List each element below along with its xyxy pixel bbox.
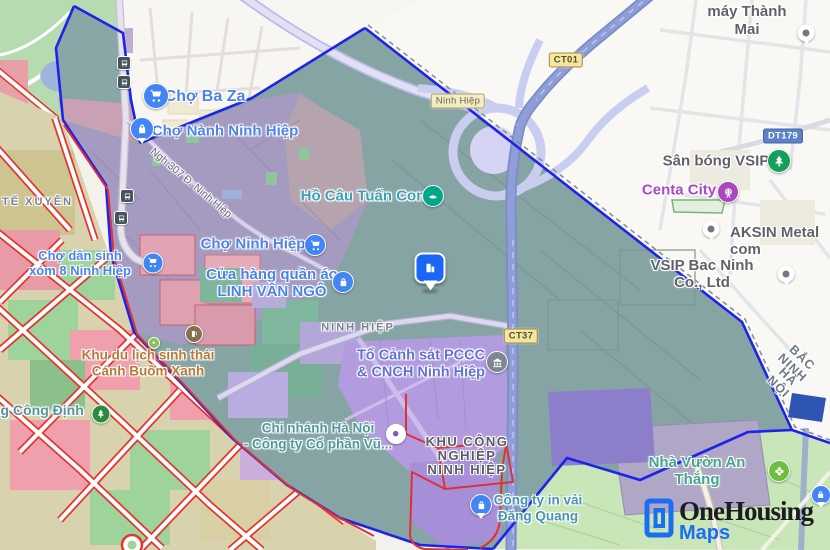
government-building-icon[interactable] — [486, 351, 508, 373]
clothing-store-icon[interactable] — [332, 271, 354, 293]
attraction-wheel-icon[interactable] — [717, 181, 739, 203]
poi-label-cho-ba-za[interactable]: Chợ Ba Za — [165, 88, 246, 106]
shopping-bag-icon[interactable] — [470, 494, 492, 516]
place-pin-icon[interactable] — [703, 221, 720, 238]
shield-dt179: DT179 — [763, 129, 803, 144]
bus-stop-icon[interactable] — [117, 56, 131, 70]
poi-label-san-bong-vsip[interactable]: Sân bóng VSIP — [663, 152, 770, 169]
onehousing-maps-logo: OneHousing Maps — [644, 498, 813, 542]
poi-label-cho-dan-sinh[interactable]: Chợ dân sinh xóm 8 Ninh Hiệp — [29, 249, 131, 279]
shopping-cart-icon[interactable] — [143, 253, 164, 274]
poi-label-cong-ty-in-vai[interactable]: Công ty in vải Đăng Quang — [494, 492, 583, 523]
poi-label-nha-vuon-an-thang[interactable]: Nhà Vườn An Thắng — [631, 454, 764, 489]
poi-label-ng-cong-dinh: ng Công Định — [0, 402, 84, 418]
place-pin-icon[interactable] — [778, 266, 795, 283]
poi-label-cho-ninh-hiep[interactable]: Chợ Ninh Hiệp — [201, 235, 306, 252]
small-park-icon — [148, 337, 160, 349]
building-icon — [422, 260, 439, 277]
area-label-kcn-ninh-hiep: KHU CÔNG NGHIỆP NINH HIỆP — [426, 435, 509, 477]
logo-wordmark: OneHousing — [679, 498, 813, 524]
bus-stop-icon[interactable] — [120, 189, 134, 203]
flower-garden-icon[interactable] — [768, 460, 790, 482]
poi-label-aksin[interactable]: AKSIN Metal com — [730, 224, 830, 259]
shield-ct37: CT37 — [504, 329, 538, 344]
road-label-ninh-hiep: Ninh Hiệp — [431, 94, 485, 109]
sports-field — [672, 200, 725, 213]
poi-label-chi-nhanh[interactable]: Chi nhánh Hà Nội - Công ty Cổ phần Vũ... — [244, 420, 393, 451]
poi-label-khu-du-lich[interactable]: Khu du lịch sinh thái Cánh Buồm Xanh — [82, 347, 215, 378]
poi-label-linh-van-ngo[interactable]: Cửa hàng quần áo LINH VÂN NGÔ — [206, 266, 338, 301]
map-canvas[interactable]: Ninh Hiệp CT01 CT37 DT179 TẾ XUYÊN NINH … — [0, 0, 830, 550]
area-label-ninh-hiep: NINH HIỆP — [321, 322, 395, 335]
poi-label-centa-city[interactable]: Centa City — [642, 181, 716, 198]
park-tree-icon[interactable] — [767, 149, 791, 173]
shield-ct01: CT01 — [549, 53, 583, 68]
poi-label-pccc[interactable]: Tổ Cảnh sát PCCC & CNCH Ninh Hiệp — [357, 347, 485, 380]
fishing-icon[interactable] — [422, 185, 444, 207]
shopping-cart-icon[interactable] — [304, 234, 326, 256]
park-tree-icon[interactable] — [92, 405, 111, 424]
bus-stop-icon[interactable] — [117, 75, 131, 89]
poi-label-sua-xe-thanh-mai[interactable]: Sửa xe máy Thành Mai — [706, 0, 789, 38]
business-dot-icon[interactable] — [386, 424, 406, 444]
shopping-cart-icon[interactable] — [143, 83, 169, 109]
bus-stop-icon[interactable] — [114, 211, 128, 225]
lock-pin-icon[interactable] — [811, 485, 830, 505]
onehousing-logo-icon — [644, 498, 675, 538]
poi-brown-icon[interactable] — [185, 325, 203, 343]
property-pin[interactable] — [415, 253, 446, 284]
poi-label-ho-cau-tuan-con[interactable]: Hồ Câu Tuấn Con — [301, 187, 426, 204]
poi-label-cho-nanh-ninh-hiep[interactable]: Chợ Nành Ninh Hiệp — [152, 122, 299, 139]
poi-label-vsip-bac-ninh[interactable]: VSIP Bac Ninh Co., Ltd — [638, 257, 766, 292]
area-label-te-xuyen: TẾ XUYÊN — [2, 196, 73, 209]
logo-sub-maps: Maps — [679, 524, 813, 542]
shopping-bag-icon[interactable] — [130, 117, 154, 141]
place-pin-icon[interactable] — [798, 25, 815, 42]
